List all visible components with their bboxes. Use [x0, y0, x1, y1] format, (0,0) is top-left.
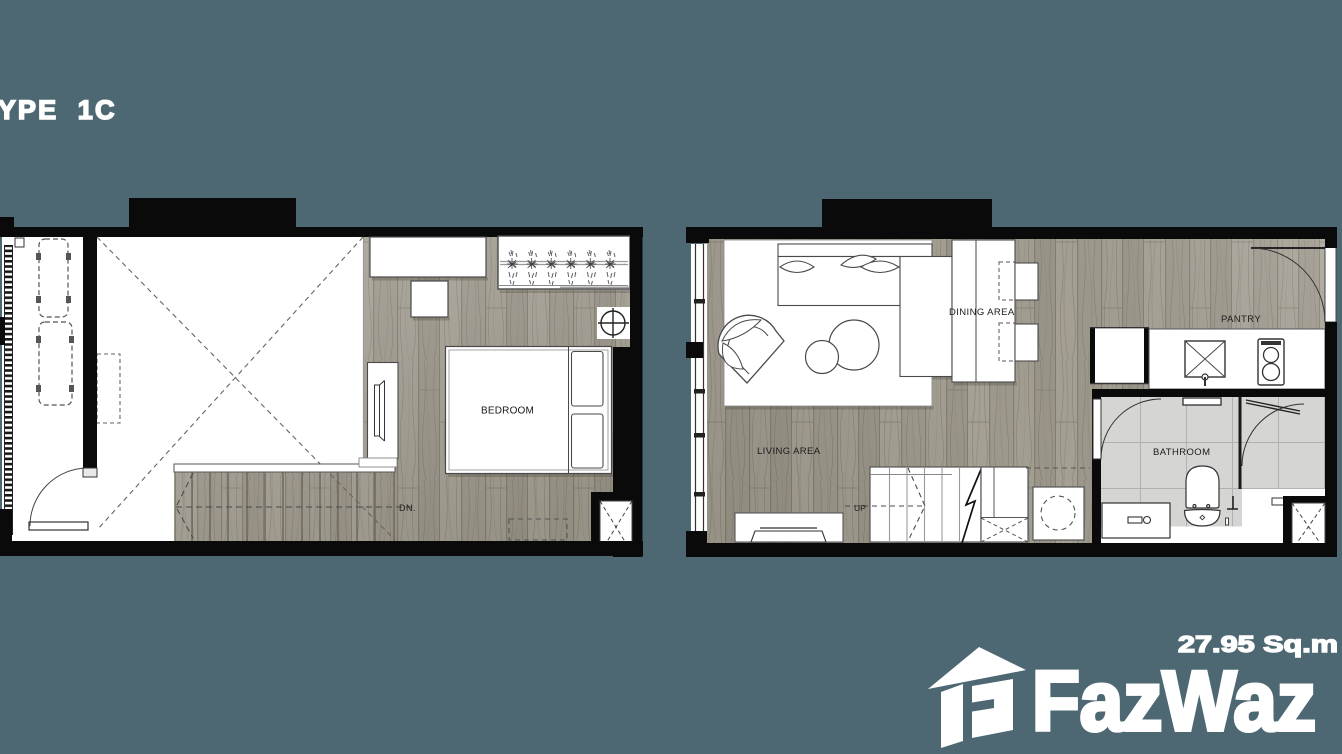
svg-text:TYPE 1C: TYPE 1C — [0, 95, 117, 125]
svg-text:FazWaz: FazWaz — [1032, 654, 1316, 748]
svg-text:BATHROOM: BATHROOM — [1153, 447, 1210, 458]
svg-text:PANTRY: PANTRY — [1221, 314, 1261, 325]
svg-text:DINING AREA: DINING AREA — [949, 307, 1015, 318]
svg-text:UP: UP — [854, 503, 866, 513]
svg-text:BEDROOM: BEDROOM — [481, 406, 534, 417]
svg-text:LIVING AREA: LIVING AREA — [757, 446, 821, 457]
svg-text:DN.: DN. — [399, 503, 416, 513]
